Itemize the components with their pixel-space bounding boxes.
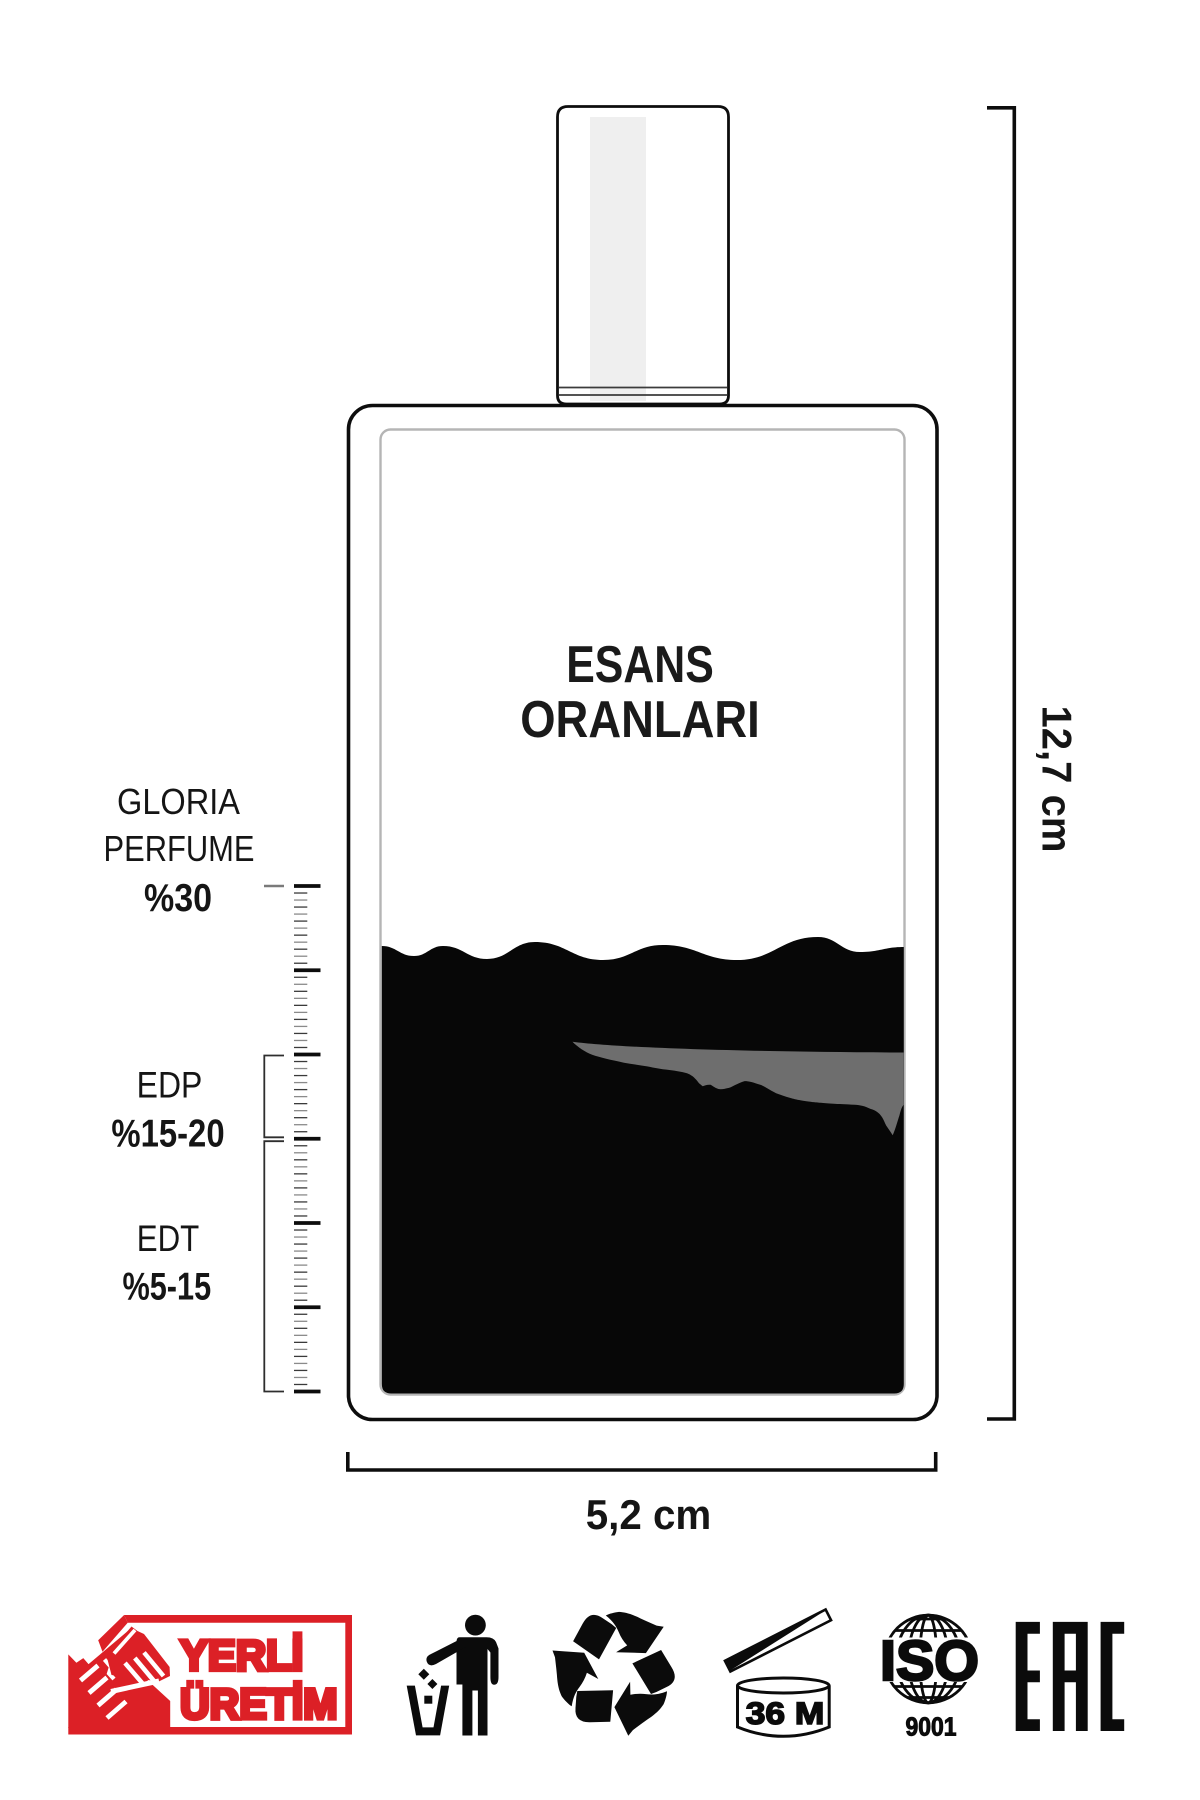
svg-text:5,2 cm: 5,2 cm	[586, 1491, 712, 1538]
svg-text:12,7 cm: 12,7 cm	[1034, 706, 1081, 853]
svg-text:GLORIA: GLORIA	[117, 781, 241, 822]
svg-text:YERLİ: YERLİ	[180, 1632, 303, 1680]
svg-text:36 M: 36 M	[746, 1695, 825, 1731]
svg-text:EDP: EDP	[137, 1064, 203, 1106]
svg-text:ORANLARI: ORANLARI	[520, 691, 760, 749]
svg-text:ÜRETİM: ÜRETİM	[180, 1680, 338, 1728]
svg-text:%30: %30	[144, 877, 212, 920]
svg-text:%15-20: %15-20	[111, 1113, 224, 1156]
svg-text:ESANS: ESANS	[566, 636, 714, 694]
svg-text:EDT: EDT	[137, 1217, 200, 1259]
svg-text:PERFUME: PERFUME	[104, 828, 255, 869]
svg-text:%5-15: %5-15	[122, 1265, 211, 1308]
svg-text:9001: 9001	[906, 1713, 957, 1741]
svg-text:ISO: ISO	[880, 1629, 979, 1693]
